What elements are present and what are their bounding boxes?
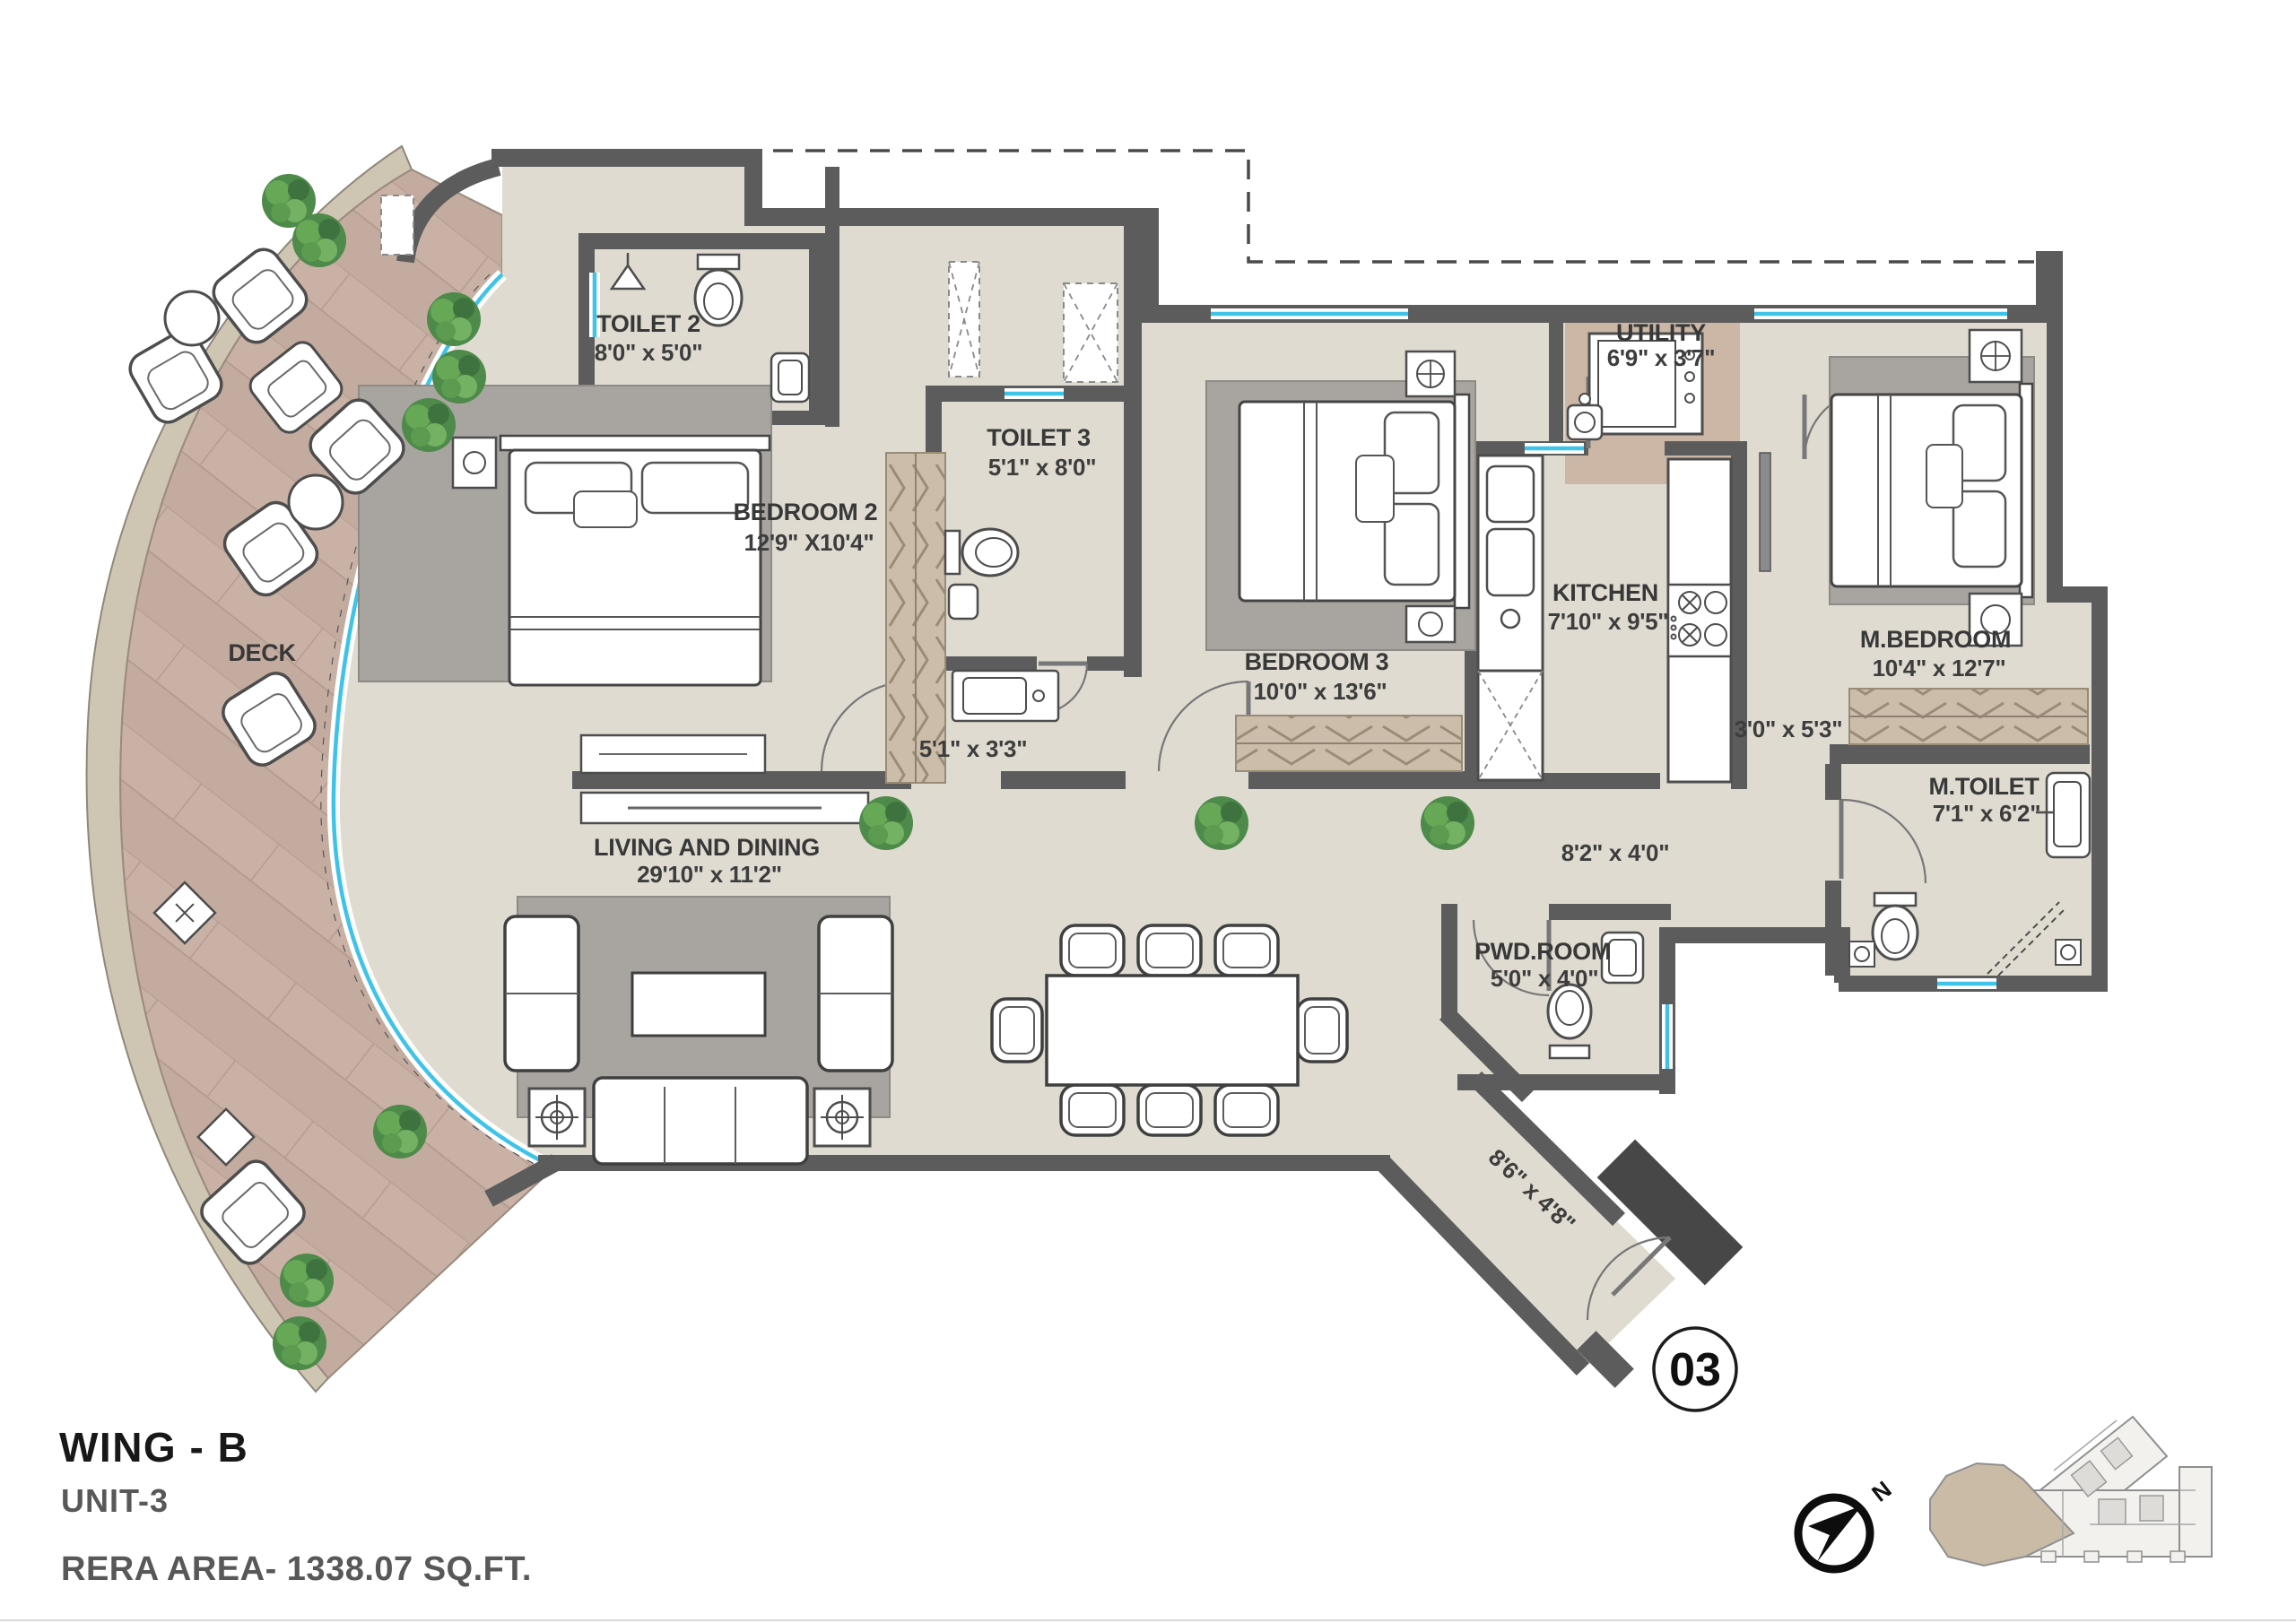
- sofa-main: [594, 1078, 807, 1164]
- room-dim-living-dining: 29'10" x 11'2": [637, 861, 782, 888]
- dining-table: [1047, 976, 1298, 1085]
- room-label-powder-room: PWD.ROOM: [1474, 938, 1611, 965]
- room-dim-powder-room: 5'0" x 4'0": [1491, 965, 1598, 992]
- room-label-bedroom2: BEDROOM 2: [734, 499, 878, 525]
- passage-dim-inner-lobby: 5'1" x 3'3": [919, 735, 1027, 762]
- unit-number-text: 03: [1669, 1344, 1721, 1396]
- unit-number-badge: 03: [1654, 1328, 1736, 1410]
- key-plan: [1930, 1417, 2212, 1566]
- kitchen-hob: [1668, 585, 1731, 656]
- room-label-toilet2: TOILET 2: [596, 310, 700, 337]
- compass-icon: N: [1798, 1476, 1896, 1569]
- room-label-kitchen: KITCHEN: [1552, 579, 1658, 606]
- unit-subtitle: UNIT-3: [61, 1482, 169, 1519]
- title-block: WING - B UNIT-3 RERA AREA- 1338.07 SQ.FT…: [59, 1424, 532, 1588]
- wing-title: WING - B: [59, 1424, 248, 1471]
- room-label-deck: DECK: [228, 639, 296, 666]
- room-dim-utility: 6'9" x 3'7": [1607, 344, 1715, 371]
- passage-dim-master-lobby: 3'0" x 5'3": [1735, 716, 1842, 742]
- compass-north-label: N: [1866, 1476, 1896, 1507]
- room-dim-bedroom2: 12'9" X10'4": [744, 529, 874, 556]
- coffee-table: [632, 973, 765, 1036]
- room-label-living-dining: LIVING AND DINING: [594, 834, 820, 861]
- side-table-lamp-left: [529, 1089, 585, 1146]
- room-dim-master-toilet: 7'1" x 6'2": [1933, 800, 2040, 827]
- master-tv-panel: [1760, 453, 1770, 571]
- room-dim-kitchen: 7'10" x 9'5": [1548, 608, 1669, 635]
- floor-plan: DECK TOILET 2 8'0" x 5'0" BEDROOM 2 12'9…: [0, 0, 2296, 1623]
- bedroom3-furniture: [1206, 352, 1475, 650]
- passage-dim-rear-passage: 8'2" x 4'0": [1561, 839, 1669, 866]
- room-label-bedroom3: BEDROOM 3: [1245, 648, 1389, 675]
- room-label-toilet3: TOILET 3: [987, 424, 1091, 451]
- room-label-utility: UTILITY: [1616, 319, 1706, 346]
- room-dim-toilet3: 5'1" x 8'0": [988, 454, 1096, 481]
- room-dim-bedroom3: 10'0" x 13'6": [1254, 678, 1387, 705]
- room-label-master-bedroom: M.BEDROOM: [1860, 626, 2011, 653]
- room-label-master-toilet: M.TOILET: [1928, 773, 2039, 800]
- side-table-lamp-right: [814, 1089, 870, 1146]
- floor-plan-page: DECK TOILET 2 8'0" x 5'0" BEDROOM 2 12'9…: [0, 0, 2296, 1623]
- room-dim-toilet2: 8'0" x 5'0": [595, 339, 702, 366]
- rera-area-text: RERA AREA- 1338.07 SQ.FT.: [61, 1550, 532, 1588]
- room-dim-master-bedroom: 10'4" x 12'7": [1873, 655, 2006, 681]
